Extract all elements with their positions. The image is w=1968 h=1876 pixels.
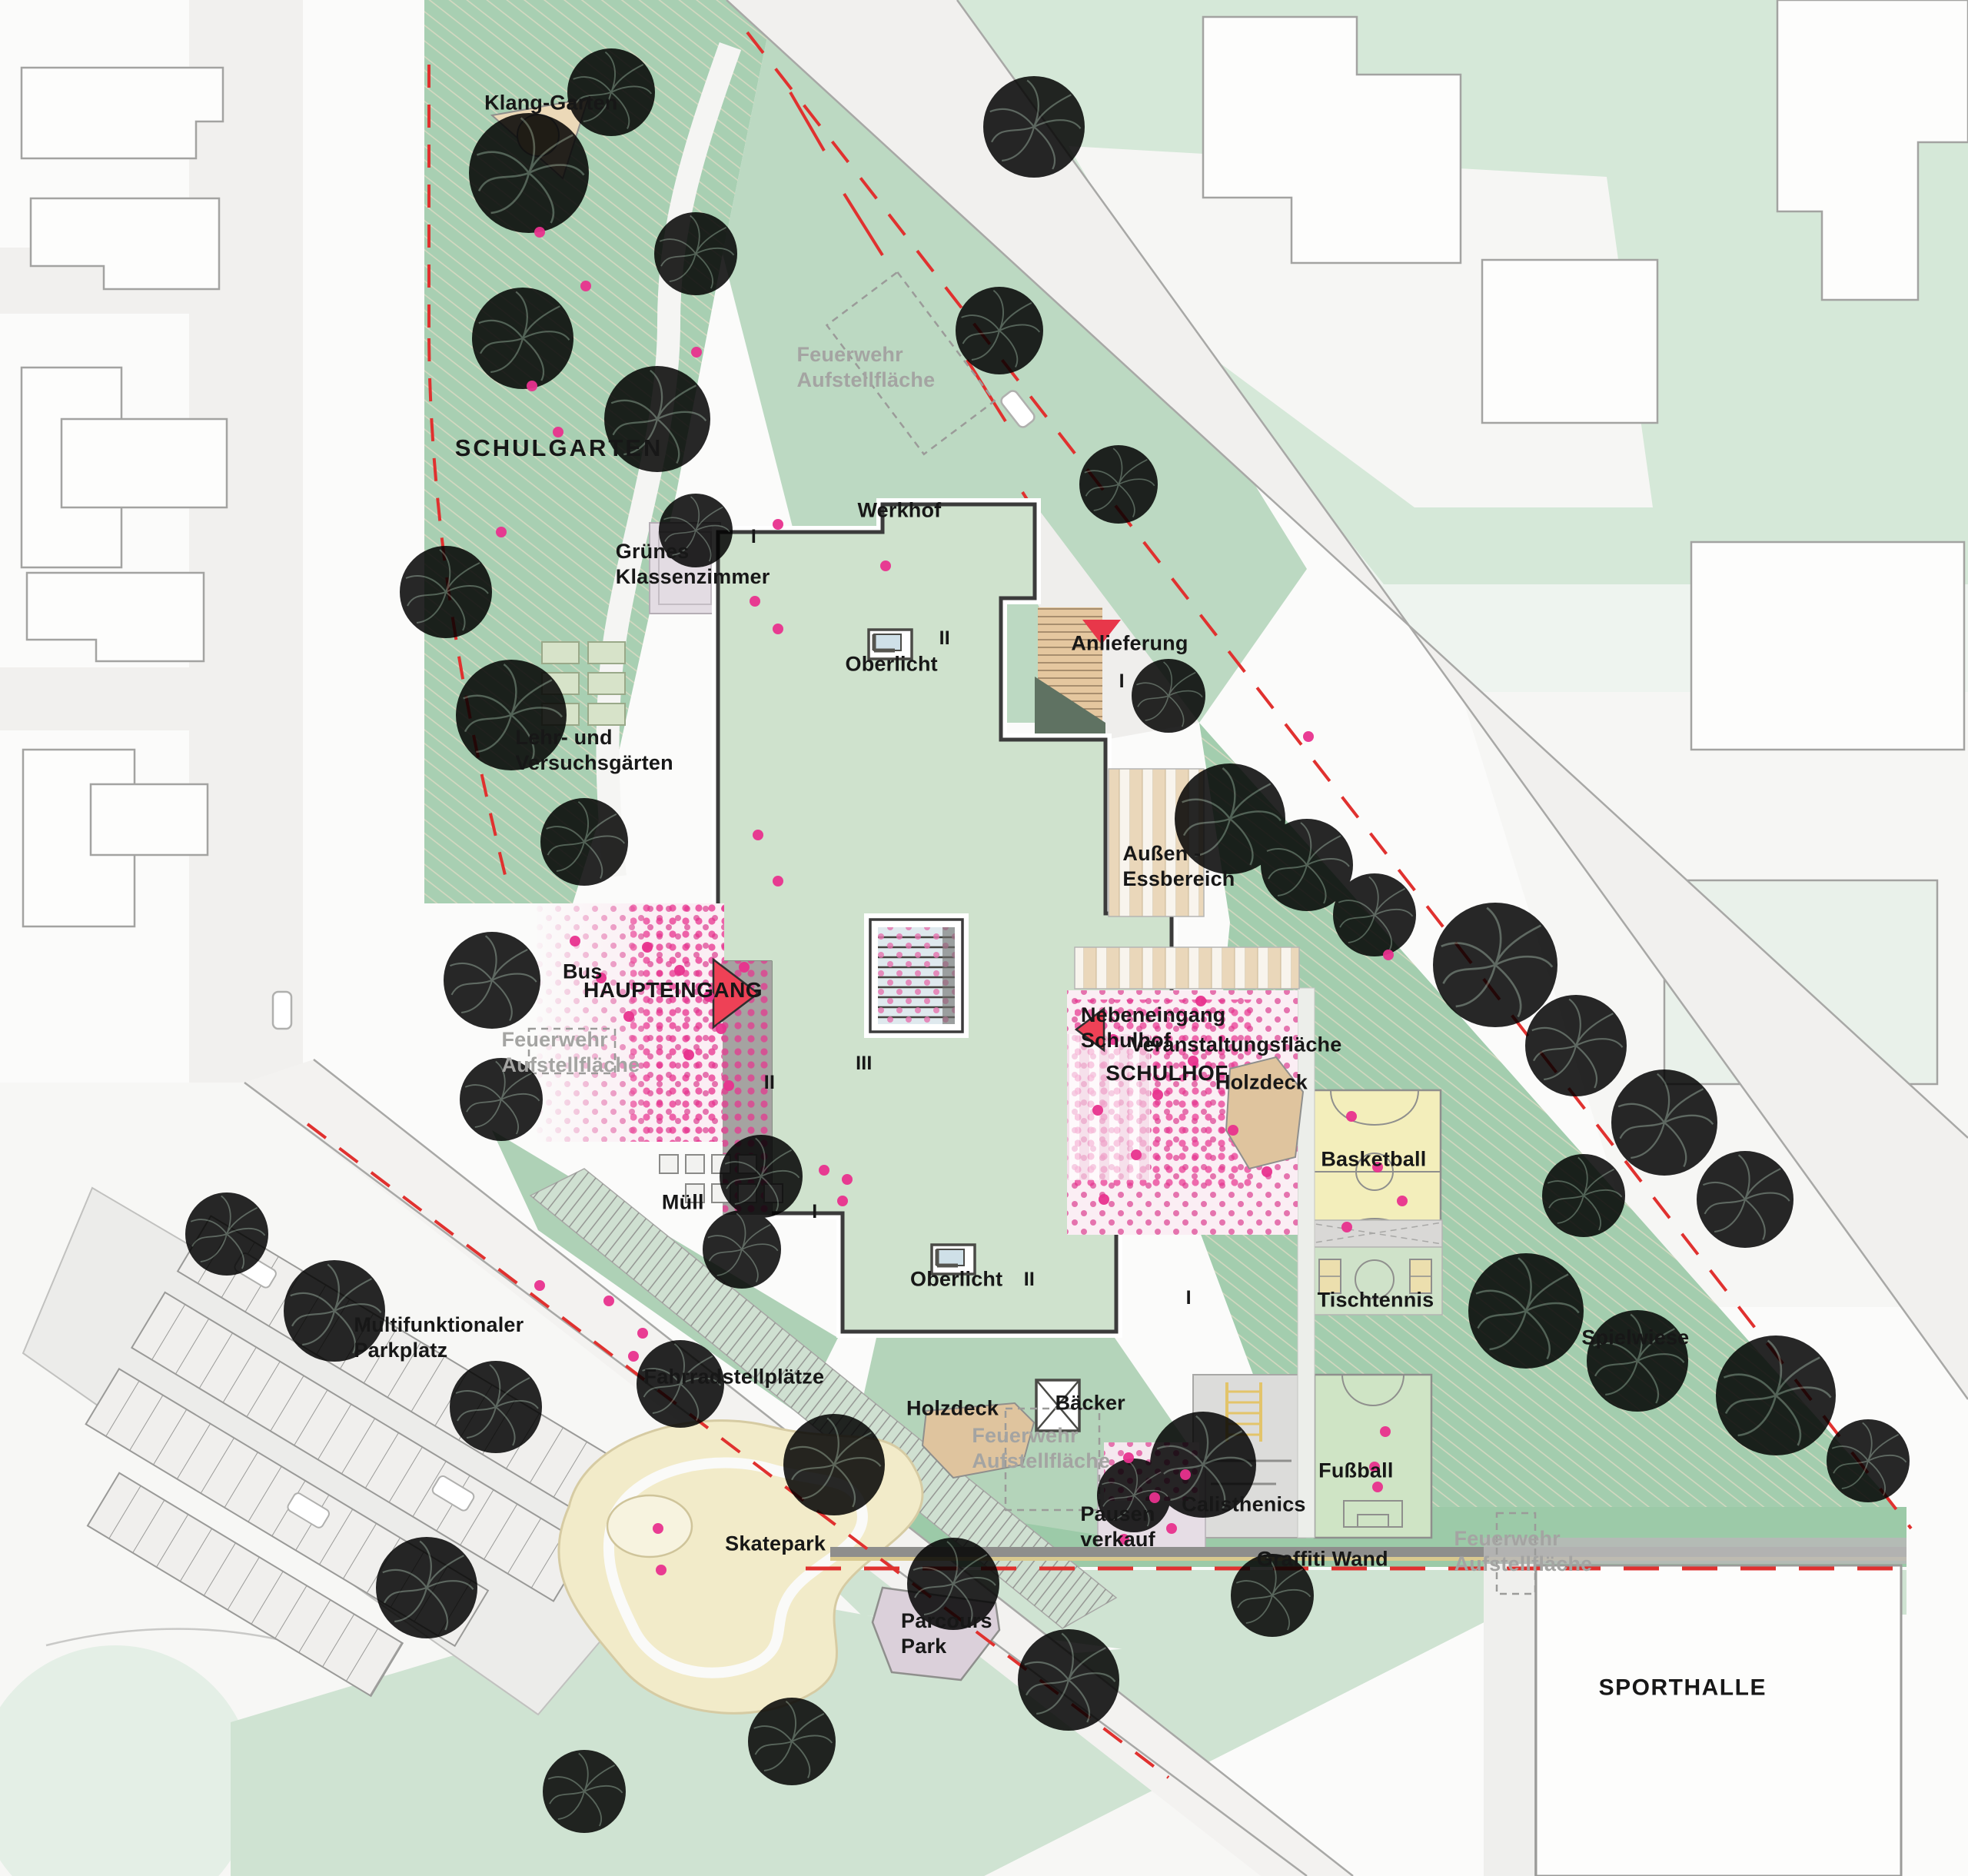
walkway <box>1298 988 1315 1538</box>
atrium-skylight-icon <box>864 913 969 1038</box>
sports-hall <box>1484 1538 1906 1876</box>
site-plan: .c1 .tc{fill:#8fc29d;opacity:.8}.c2 .tc{… <box>0 0 1968 1876</box>
table-tennis-area <box>1305 1220 1442 1315</box>
baker-kiosk-icon <box>1036 1380 1079 1431</box>
soccer-field <box>1315 1375 1431 1538</box>
site-plan-drawing: .c1 .tc{fill:#8fc29d;opacity:.8}.c2 .tc{… <box>0 0 1968 1876</box>
